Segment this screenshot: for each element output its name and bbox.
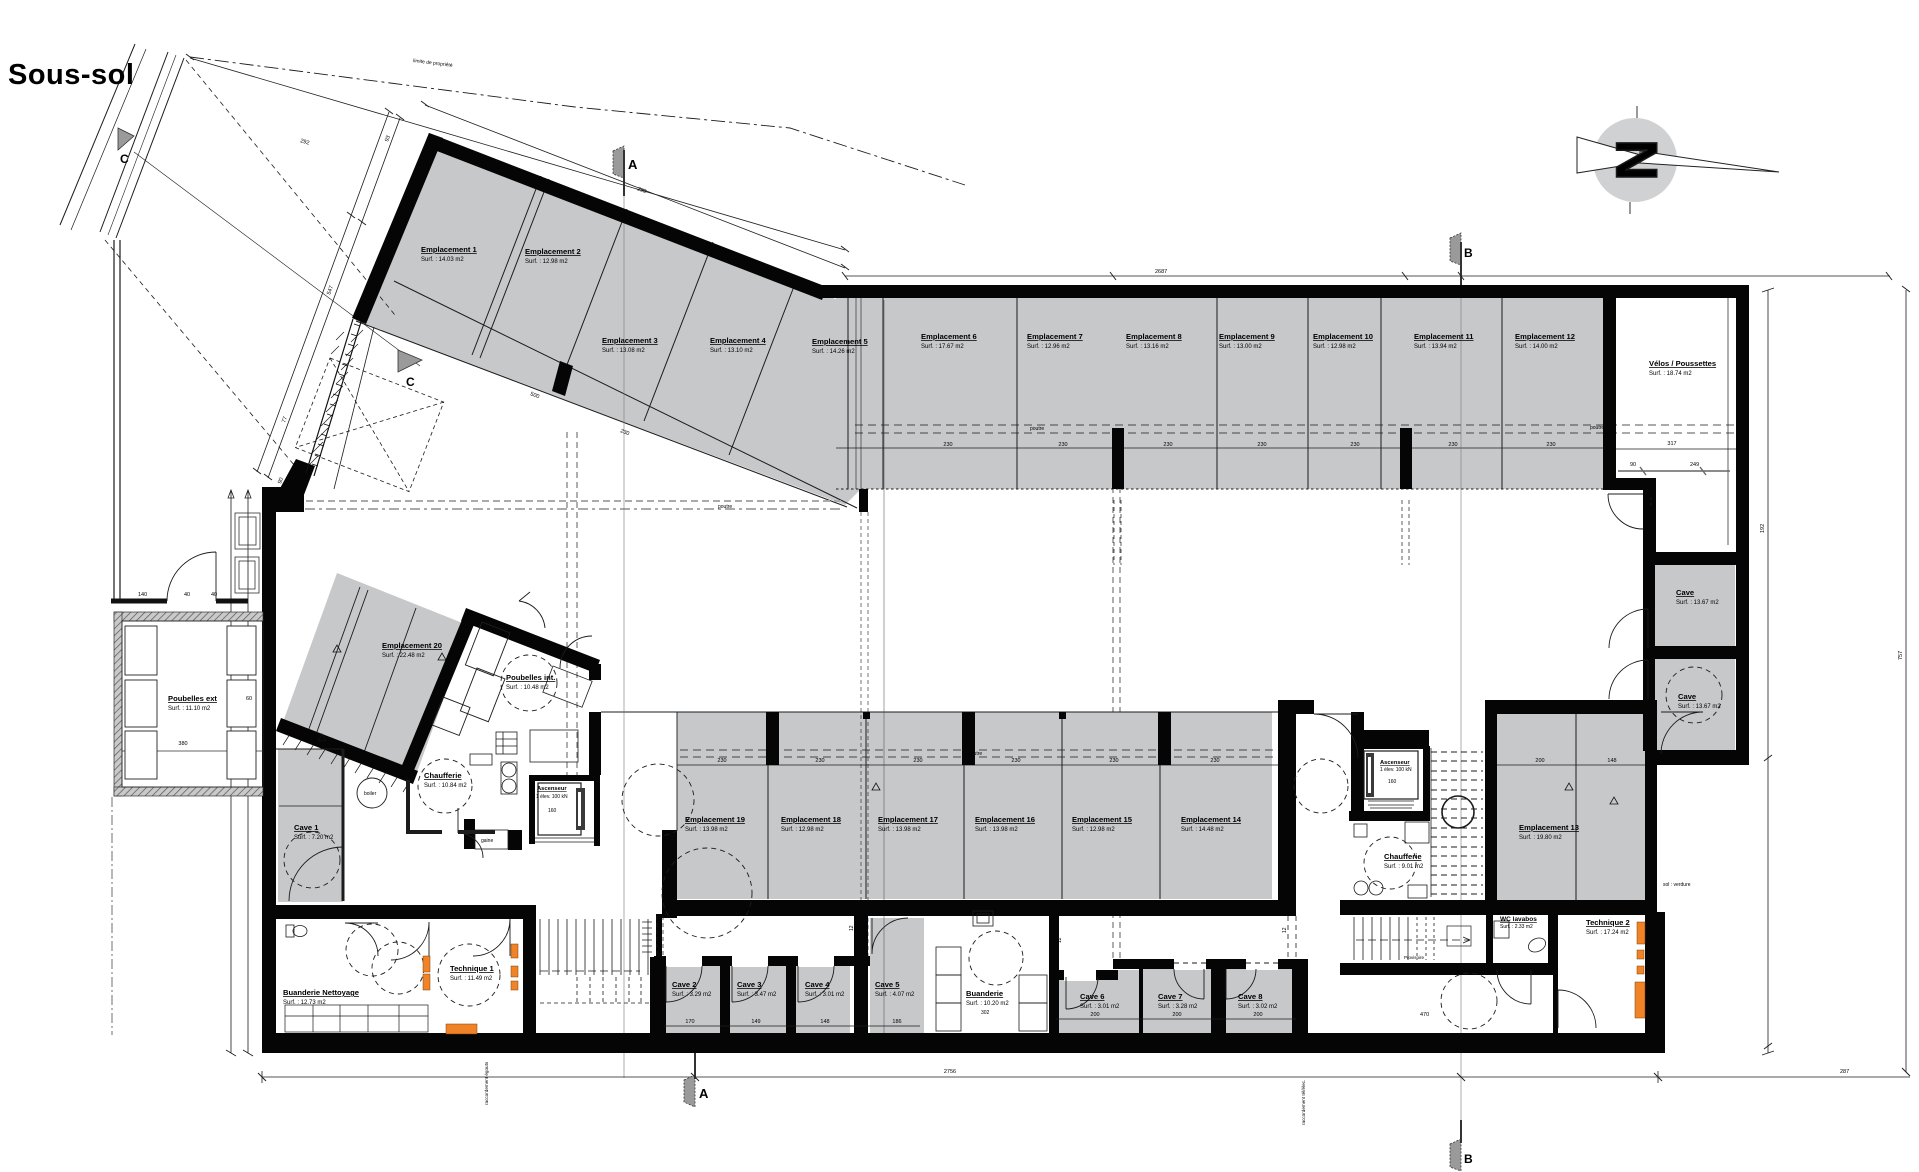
svg-text:Surf. : 3.01 m2: Surf. : 3.01 m2 xyxy=(1080,1004,1120,1010)
svg-text:Emplacement 19: Emplacement 19 xyxy=(685,815,745,824)
svg-text:Surf. : 14.03 m2: Surf. : 14.03 m2 xyxy=(421,257,464,263)
svg-text:230: 230 xyxy=(1109,758,1118,764)
svg-text:C: C xyxy=(406,375,415,389)
svg-text:Emplacement 6: Emplacement 6 xyxy=(921,332,977,341)
svg-text:Surf. : 11.49 m2: Surf. : 11.49 m2 xyxy=(450,976,493,982)
svg-text:160: 160 xyxy=(548,808,557,814)
svg-text:1 élev. 100 kN: 1 élev. 100 kN xyxy=(1380,767,1412,773)
svg-text:Surf. : 22.48 m2: Surf. : 22.48 m2 xyxy=(382,653,425,659)
svg-text:Emplacement 14: Emplacement 14 xyxy=(1181,815,1242,824)
svg-text:287: 287 xyxy=(1840,1069,1849,1075)
svg-text:A: A xyxy=(699,1086,709,1101)
svg-text:230: 230 xyxy=(1257,442,1266,448)
svg-text:N: N xyxy=(1604,139,1669,181)
svg-text:WC lavabos: WC lavabos xyxy=(1500,916,1537,923)
svg-text:Emplacement 4: Emplacement 4 xyxy=(710,336,766,345)
svg-text:Cave 7: Cave 7 xyxy=(1158,992,1183,1001)
svg-text:12: 12 xyxy=(849,925,855,931)
svg-text:40: 40 xyxy=(211,592,217,598)
svg-text:Surf. : 7.20 m2: Surf. : 7.20 m2 xyxy=(294,835,334,841)
svg-text:Emplacement 2: Emplacement 2 xyxy=(525,247,581,256)
svg-text:Buanderie Nettoyage: Buanderie Nettoyage xyxy=(283,988,359,997)
svg-text:Poubelles int.: Poubelles int. xyxy=(506,673,555,682)
svg-text:Surf. : 10.48 m2: Surf. : 10.48 m2 xyxy=(506,685,549,691)
svg-text:Surf. : 13.98 m2: Surf. : 13.98 m2 xyxy=(685,827,728,833)
svg-text:B: B xyxy=(1464,246,1473,260)
svg-text:230: 230 xyxy=(815,758,824,764)
svg-text:Surf. : 14.26 m2: Surf. : 14.26 m2 xyxy=(812,349,855,355)
svg-text:Provisoire: Provisoire xyxy=(1404,955,1425,960)
svg-text:poutre: poutre xyxy=(718,504,732,510)
svg-text:sol : verdure: sol : verdure xyxy=(1663,882,1691,888)
svg-text:raccordement égouts: raccordement égouts xyxy=(484,1061,489,1105)
svg-text:757: 757 xyxy=(1898,651,1904,660)
svg-text:317: 317 xyxy=(1667,441,1676,447)
svg-text:Surf. : 13.00 m2: Surf. : 13.00 m2 xyxy=(1219,344,1262,350)
svg-text:gaine: gaine xyxy=(481,838,493,844)
svg-text:Emplacement 8: Emplacement 8 xyxy=(1126,332,1182,341)
svg-text:Technique 1: Technique 1 xyxy=(450,964,495,973)
svg-text:Emplacement 13: Emplacement 13 xyxy=(1519,823,1579,832)
svg-text:Poubelles ext: Poubelles ext xyxy=(168,694,217,703)
svg-text:Surf. : 13.16 m2: Surf. : 13.16 m2 xyxy=(1126,344,1169,350)
svg-text:200: 200 xyxy=(1253,1012,1262,1018)
svg-text:poutre: poutre xyxy=(1590,425,1604,431)
svg-text:186: 186 xyxy=(892,1019,901,1025)
svg-text:Surf. : 13.67 m2: Surf. : 13.67 m2 xyxy=(1676,600,1719,606)
svg-text:Cave: Cave xyxy=(1676,588,1694,597)
svg-text:Vélos / Poussettes: Vélos / Poussettes xyxy=(1649,359,1716,368)
svg-text:Surf. : 12.98 m2: Surf. : 12.98 m2 xyxy=(525,259,568,265)
svg-text:470: 470 xyxy=(1420,1012,1429,1018)
svg-text:230: 230 xyxy=(913,758,922,764)
svg-text:Emplacement 3: Emplacement 3 xyxy=(602,336,658,345)
svg-text:Surf. : 2.33 m2: Surf. : 2.33 m2 xyxy=(1500,924,1533,930)
svg-text:Surf. : 12.96 m2: Surf. : 12.96 m2 xyxy=(1027,344,1070,350)
svg-text:Cave 3: Cave 3 xyxy=(737,980,762,989)
svg-text:380: 380 xyxy=(178,741,187,747)
svg-text:200: 200 xyxy=(1172,1012,1181,1018)
svg-text:Cave 5: Cave 5 xyxy=(875,980,900,989)
svg-text:boiler: boiler xyxy=(364,791,377,797)
svg-text:230: 230 xyxy=(1058,442,1067,448)
svg-text:Surf. : 18.74 m2: Surf. : 18.74 m2 xyxy=(1649,371,1692,377)
svg-text:40: 40 xyxy=(184,592,190,598)
svg-text:170: 170 xyxy=(685,1019,694,1025)
svg-text:Surf. : 13.98 m2: Surf. : 13.98 m2 xyxy=(878,827,921,833)
svg-text:Emplacement 7: Emplacement 7 xyxy=(1027,332,1083,341)
svg-text:160: 160 xyxy=(1388,779,1397,785)
svg-text:Emplacement 18: Emplacement 18 xyxy=(781,815,841,824)
svg-text:Surf. : 12.98 m2: Surf. : 12.98 m2 xyxy=(1072,827,1115,833)
svg-text:Emplacement 15: Emplacement 15 xyxy=(1072,815,1133,824)
svg-text:230: 230 xyxy=(1210,758,1219,764)
svg-text:192: 192 xyxy=(1760,524,1766,533)
svg-text:Cave: Cave xyxy=(1678,692,1696,701)
svg-text:Surf. : 10.84 m2: Surf. : 10.84 m2 xyxy=(424,783,467,789)
svg-text:Surf. : 12.98 m2: Surf. : 12.98 m2 xyxy=(781,827,824,833)
svg-text:Cave 6: Cave 6 xyxy=(1080,992,1105,1001)
svg-text:2756: 2756 xyxy=(944,1069,956,1075)
svg-text:Emplacement 17: Emplacement 17 xyxy=(878,815,938,824)
svg-text:Surf. : 11.10 m2: Surf. : 11.10 m2 xyxy=(168,706,211,712)
svg-text:Surf. : 9.01 m2: Surf. : 9.01 m2 xyxy=(1384,864,1424,870)
svg-text:149: 149 xyxy=(751,1019,760,1025)
svg-text:poutre: poutre xyxy=(1030,426,1044,432)
svg-text:148: 148 xyxy=(1607,758,1616,764)
svg-text:Cave 1: Cave 1 xyxy=(294,823,319,832)
svg-text:12: 12 xyxy=(1057,937,1063,943)
svg-text:230: 230 xyxy=(1448,442,1457,448)
svg-text:Surf. : 3.28 m2: Surf. : 3.28 m2 xyxy=(1158,1004,1198,1010)
svg-text:Surf. : 3.01 m2: Surf. : 3.01 m2 xyxy=(805,992,845,998)
svg-text:Surf. : 17.24 m2: Surf. : 17.24 m2 xyxy=(1586,930,1629,936)
svg-text:Ascenseur: Ascenseur xyxy=(537,786,567,792)
svg-text:raccordement tél/élec.: raccordement tél/élec. xyxy=(1301,1080,1306,1125)
svg-text:Cave 4: Cave 4 xyxy=(805,980,830,989)
svg-text:2687: 2687 xyxy=(1155,269,1167,275)
svg-text:302: 302 xyxy=(981,1010,990,1016)
svg-text:Emplacement 9: Emplacement 9 xyxy=(1219,332,1275,341)
svg-text:Surf. : 12.73 m2: Surf. : 12.73 m2 xyxy=(283,1000,326,1006)
svg-text:Emplacement 1: Emplacement 1 xyxy=(421,245,477,254)
svg-text:Cave 8: Cave 8 xyxy=(1238,992,1263,1001)
svg-text:Buanderie: Buanderie xyxy=(966,989,1003,998)
svg-text:230: 230 xyxy=(1350,442,1359,448)
svg-text:Emplacement 20: Emplacement 20 xyxy=(382,641,442,650)
svg-text:200: 200 xyxy=(1535,758,1544,764)
svg-text:Surf. : 13.98 m2: Surf. : 13.98 m2 xyxy=(975,827,1018,833)
svg-text:Surf. : 19.80 m2: Surf. : 19.80 m2 xyxy=(1519,835,1562,841)
svg-text:A: A xyxy=(628,157,638,172)
svg-text:Emplacement 12: Emplacement 12 xyxy=(1515,332,1575,341)
svg-text:Emplacement 5: Emplacement 5 xyxy=(812,337,868,346)
svg-text:Surf. : 3.02 m2: Surf. : 3.02 m2 xyxy=(1238,1004,1278,1010)
svg-text:230: 230 xyxy=(1163,442,1172,448)
svg-text:Emplacement 11: Emplacement 11 xyxy=(1414,332,1474,341)
svg-text:Chaufferie: Chaufferie xyxy=(1384,852,1422,861)
svg-text:C: C xyxy=(120,152,129,166)
svg-text:230: 230 xyxy=(943,442,952,448)
svg-text:230: 230 xyxy=(717,758,726,764)
svg-text:Surf. : 13.67 m2: Surf. : 13.67 m2 xyxy=(1678,704,1721,710)
svg-text:Surf. : 4.07 m2: Surf. : 4.07 m2 xyxy=(875,992,915,998)
svg-text:B: B xyxy=(1464,1152,1473,1166)
svg-text:90: 90 xyxy=(1630,462,1636,468)
svg-text:Surf. : 10.20 m2: Surf. : 10.20 m2 xyxy=(966,1001,1009,1007)
svg-text:Surf. : 3.29 m2: Surf. : 3.29 m2 xyxy=(672,992,712,998)
svg-text:140: 140 xyxy=(138,592,147,598)
svg-text:Surf. : 13.08 m2: Surf. : 13.08 m2 xyxy=(602,348,645,354)
svg-text:Ascenseur: Ascenseur xyxy=(1380,760,1410,766)
svg-text:Emplacement 16: Emplacement 16 xyxy=(975,815,1035,824)
svg-text:1 élev. 100 kN: 1 élev. 100 kN xyxy=(536,794,568,800)
svg-text:230: 230 xyxy=(1546,442,1555,448)
svg-text:poutre: poutre xyxy=(968,751,982,757)
svg-text:230: 230 xyxy=(1011,758,1020,764)
svg-text:Emplacement 10: Emplacement 10 xyxy=(1313,332,1373,341)
svg-text:Cave 2: Cave 2 xyxy=(672,980,697,989)
svg-text:Surf. : 17.67 m2: Surf. : 17.67 m2 xyxy=(921,344,964,350)
svg-text:249: 249 xyxy=(1690,462,1699,468)
svg-text:Surf. : 14.00 m2: Surf. : 14.00 m2 xyxy=(1515,344,1558,350)
svg-text:Sous-sol: Sous-sol xyxy=(8,59,134,91)
svg-text:148: 148 xyxy=(820,1019,829,1025)
svg-text:12: 12 xyxy=(1282,927,1288,933)
svg-text:Surf. : 14.48 m2: Surf. : 14.48 m2 xyxy=(1181,827,1224,833)
svg-text:Surf. : 13.94 m2: Surf. : 13.94 m2 xyxy=(1414,344,1457,350)
svg-text:Technique 2: Technique 2 xyxy=(1586,918,1630,927)
svg-text:200: 200 xyxy=(1090,1012,1099,1018)
svg-text:Surf. : 13.10 m2: Surf. : 13.10 m2 xyxy=(710,348,753,354)
svg-text:Chaufferie: Chaufferie xyxy=(424,771,462,780)
svg-text:Surf. : 12.98 m2: Surf. : 12.98 m2 xyxy=(1313,344,1356,350)
svg-text:Surf. : 3.47 m2: Surf. : 3.47 m2 xyxy=(737,992,777,998)
svg-text:60: 60 xyxy=(246,696,252,702)
